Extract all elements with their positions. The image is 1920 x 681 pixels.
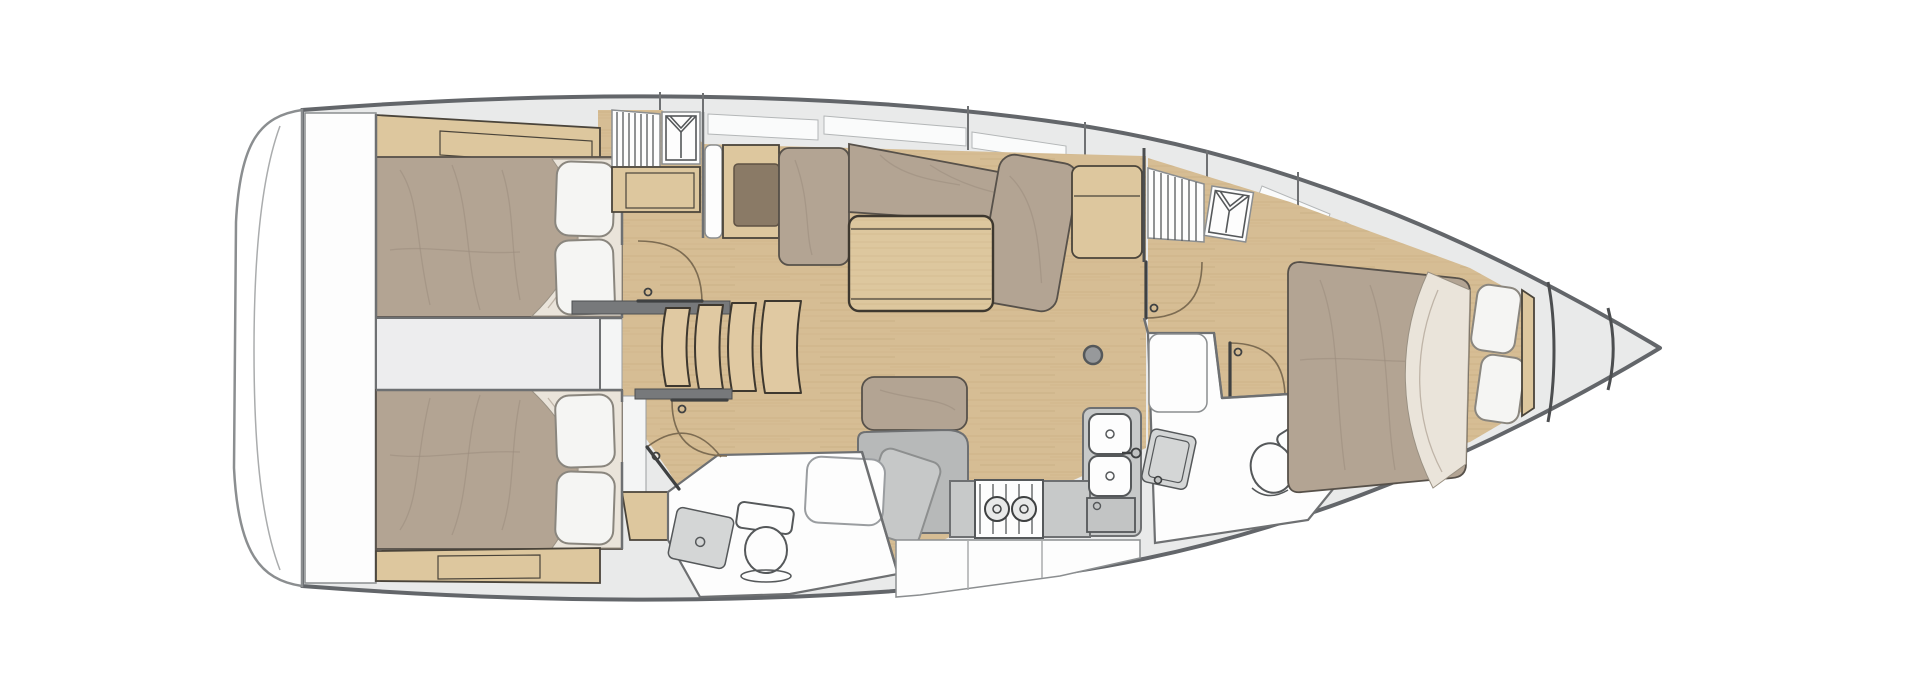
pillow <box>555 394 615 468</box>
companionway-step <box>662 308 690 386</box>
pillow <box>555 161 616 237</box>
companionway-step <box>695 305 723 389</box>
companionway-step <box>728 303 756 391</box>
sink-basin <box>1089 414 1131 454</box>
toilet-bowl <box>745 527 787 573</box>
tall-locker <box>705 145 722 238</box>
chaise-cushion <box>779 148 849 265</box>
companionway-landing <box>635 389 732 399</box>
transom-swim-platform <box>234 110 302 586</box>
entry-step <box>622 492 668 540</box>
aft-head <box>667 452 898 597</box>
saloon-table <box>849 216 993 311</box>
shelf-locker <box>376 548 600 583</box>
pillow <box>1470 283 1523 354</box>
faucet-icon <box>1155 477 1162 484</box>
pillow <box>555 471 615 545</box>
yacht-floorplan-diagram <box>0 0 1920 681</box>
nav-seat-cushion <box>862 377 967 430</box>
companionway-step <box>761 301 801 393</box>
yacht-floorplan-page <box>0 0 1920 681</box>
headboard <box>1522 290 1534 416</box>
faucet-icon <box>1132 449 1141 458</box>
sideboard-top <box>612 167 700 212</box>
vanity-counter <box>1149 334 1207 412</box>
burner-icon <box>1012 497 1036 521</box>
stove <box>975 480 1043 538</box>
hanging-locker <box>1204 186 1253 242</box>
forward-cabinet <box>1072 166 1142 258</box>
corridor-sole <box>600 318 622 390</box>
folding-table <box>849 216 993 311</box>
mast-post-icon <box>1084 346 1102 364</box>
lazarette-locker <box>305 113 376 583</box>
sink-basin <box>1089 456 1131 496</box>
storage-cabinet <box>1072 166 1142 258</box>
pillow <box>1474 353 1527 424</box>
slatted-locker-slats <box>617 112 653 166</box>
worktop-panel <box>734 164 779 226</box>
burner-icon <box>985 497 1009 521</box>
engine-compartment <box>376 318 600 390</box>
